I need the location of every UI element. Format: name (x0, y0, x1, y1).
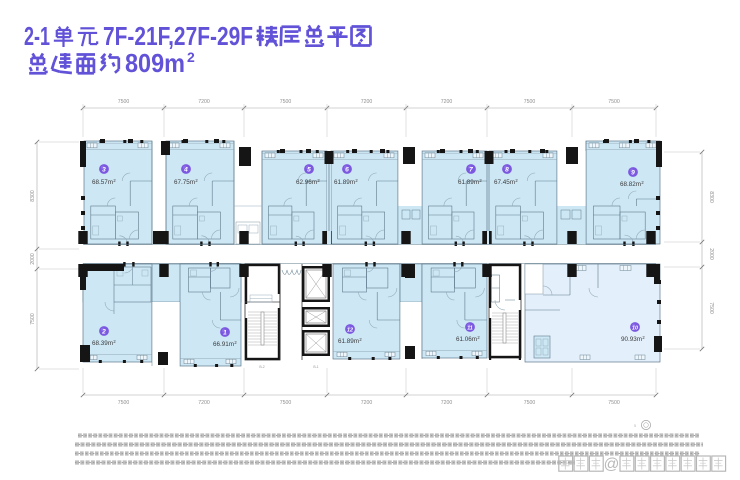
svg-text:7200: 7200 (441, 400, 453, 406)
svg-text:7500: 7500 (608, 400, 620, 406)
svg-text:8300: 8300 (30, 190, 36, 202)
svg-text:5: 5 (307, 166, 311, 173)
svg-text:2000: 2000 (708, 248, 714, 260)
svg-text:68.57m: 68.57m (92, 179, 113, 186)
svg-text:2: 2 (101, 328, 106, 335)
svg-text:61.06m: 61.06m (456, 336, 477, 343)
svg-text:B-2: B-2 (259, 365, 264, 369)
svg-text:8300: 8300 (708, 191, 714, 203)
svg-text:809m: 809m (125, 48, 185, 78)
svg-text:7500: 7500 (608, 99, 620, 105)
svg-text:7: 7 (469, 166, 473, 173)
svg-text:61.89m: 61.89m (334, 179, 355, 186)
svg-text:62.96m: 62.96m (296, 179, 317, 186)
svg-text:@: @ (604, 456, 620, 473)
svg-text:2-1: 2-1 (24, 21, 50, 51)
svg-text:7500: 7500 (30, 313, 36, 325)
svg-text:2: 2 (187, 49, 195, 65)
svg-text:90.93m: 90.93m (621, 336, 642, 343)
svg-text:66.91m: 66.91m (213, 341, 234, 348)
svg-text:7500: 7500 (524, 400, 536, 406)
svg-text:1: 1 (223, 329, 227, 336)
svg-text:10: 10 (632, 325, 638, 331)
svg-text:B-1: B-1 (313, 365, 318, 369)
svg-text:4: 4 (183, 166, 188, 173)
svg-text:2000: 2000 (30, 253, 36, 265)
svg-text:7500: 7500 (708, 302, 714, 314)
svg-text:7500: 7500 (280, 99, 292, 105)
svg-text:7200: 7200 (198, 400, 210, 406)
svg-text:67.75m: 67.75m (174, 179, 195, 186)
svg-text:7500: 7500 (118, 99, 130, 105)
svg-text:68.82m: 68.82m (620, 181, 641, 188)
svg-text:68.39m: 68.39m (92, 340, 113, 347)
svg-text:61.89m: 61.89m (338, 338, 359, 345)
svg-text:7500: 7500 (280, 400, 292, 406)
svg-text:3: 3 (102, 166, 106, 173)
svg-text:7200: 7200 (361, 99, 373, 105)
svg-text:7500: 7500 (524, 99, 536, 105)
svg-text:12: 12 (347, 327, 353, 333)
svg-text:67.45m: 67.45m (494, 179, 515, 186)
svg-text:9: 9 (631, 169, 635, 176)
svg-text:6: 6 (345, 166, 349, 173)
svg-text:11: 11 (467, 325, 473, 331)
svg-text:61.89m: 61.89m (458, 179, 479, 186)
svg-text:7500: 7500 (118, 400, 130, 406)
svg-text:7200: 7200 (441, 99, 453, 105)
svg-text:7F-21F,27F-29F: 7F-21F,27F-29F (103, 21, 253, 51)
svg-text:7200: 7200 (361, 400, 373, 406)
svg-text:7200: 7200 (198, 99, 210, 105)
svg-text:8: 8 (505, 166, 509, 173)
